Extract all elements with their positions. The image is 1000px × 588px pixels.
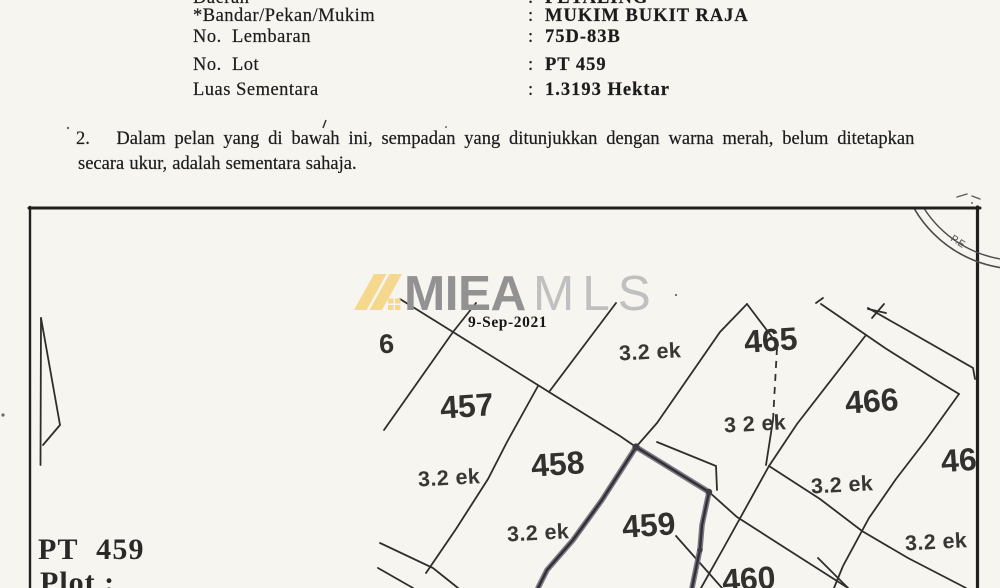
svg-text:3.2 ek: 3.2 ek [506,519,569,546]
svg-text:3 2 ek: 3 2 ek [723,410,786,437]
svg-text:458: 458 [530,444,586,484]
svg-text:MLS: MLS [533,266,659,321]
svg-text:460: 460 [721,559,777,588]
svg-text:459: 459 [621,505,677,545]
svg-text:9-Sep-2021: 9-Sep-2021 [468,314,547,331]
svg-text:3.2 ek: 3.2 ek [618,338,681,365]
svg-text:3.2 ek: 3.2 ek [810,471,873,498]
svg-text:457: 457 [439,386,495,426]
svg-text:466: 466 [844,381,900,421]
svg-text:3.2 ek: 3.2 ek [417,464,480,491]
svg-text:465: 465 [743,320,799,360]
svg-text:6: 6 [378,329,395,360]
svg-text:46: 46 [940,441,978,479]
svg-text:MIEA: MIEA [404,266,526,321]
svg-text:PT 459: PT 459 [38,533,145,566]
svg-text:Plot :: Plot : [40,566,115,588]
svg-text:3.2 ek: 3.2 ek [904,528,967,555]
